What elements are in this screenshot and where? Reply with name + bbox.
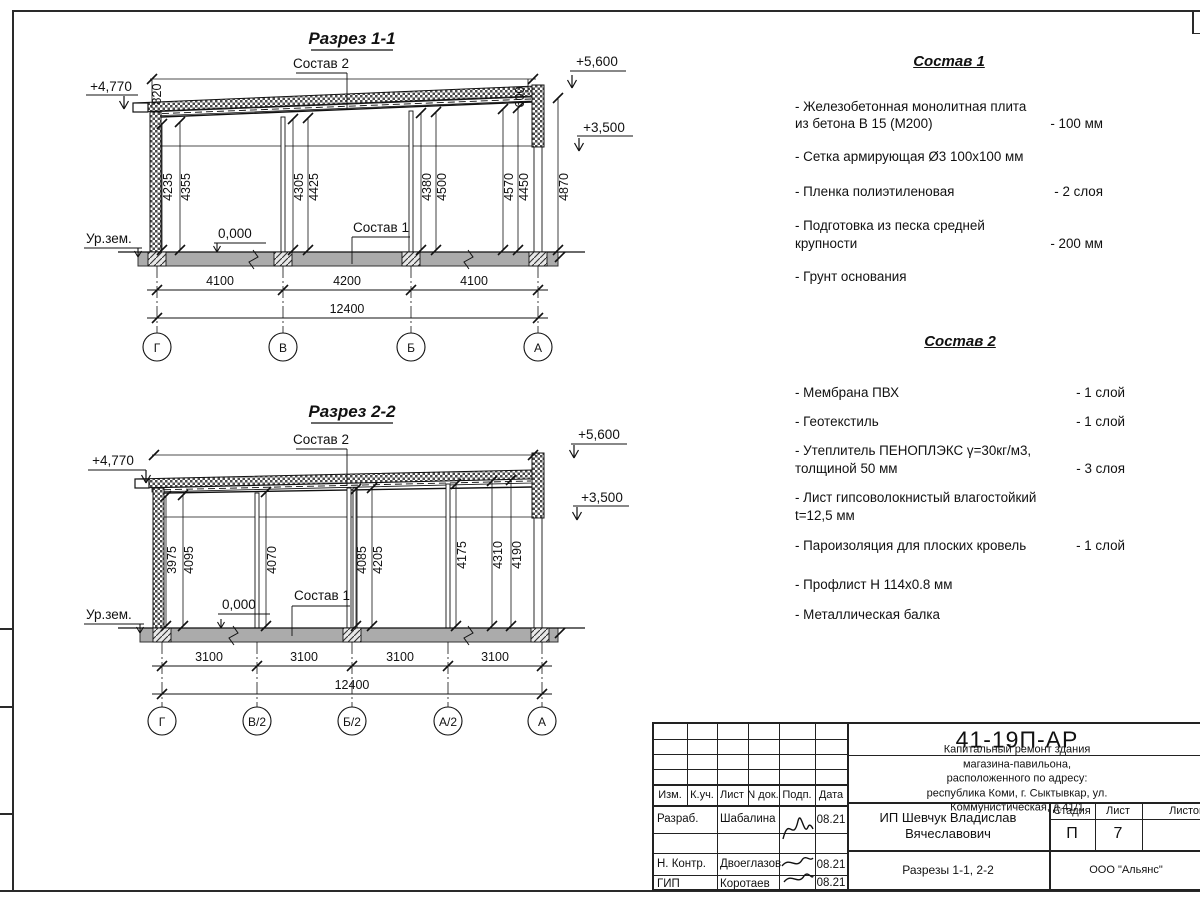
row-name: Коротаев <box>720 878 770 890</box>
axis-bubble: Г <box>159 715 166 729</box>
height-dim: 4070 <box>265 546 279 574</box>
axis-bubble: А/2 <box>439 715 457 729</box>
height-dim: 4205 <box>371 546 385 574</box>
span-dim: 3100 <box>481 650 509 664</box>
height-dim: 3975 <box>165 546 179 574</box>
sostav1-list: Состав 1 - Железобетонная монолитная пли… <box>795 52 1103 285</box>
axis-bubble: Б <box>407 341 415 355</box>
item-text: - Пленка полиэтиленовая <box>795 183 954 200</box>
dim-820: 820 <box>150 84 164 105</box>
span-dim: 4200 <box>333 274 361 288</box>
drawing-sheet: Разрез 1-1 <box>0 0 1200 900</box>
sostav2-title: Состав 2 <box>795 332 1125 352</box>
height-dim: 4500 <box>435 173 449 201</box>
axis-bubble: А <box>538 715 546 729</box>
ground-label-2: Ур.зем. <box>86 607 132 622</box>
sostav1-callout-2: Состав 1 <box>294 588 350 603</box>
col-kuch: К.уч. <box>690 789 714 801</box>
signature-icon <box>780 807 815 849</box>
elevation-mid-1: +3,500 <box>583 120 625 135</box>
height-dim: 4570 <box>502 173 516 201</box>
list-item: - Железобетонная монолитная плита из бет… <box>795 98 1103 133</box>
height-dim: 4235 <box>161 173 175 201</box>
total-dim: 12400 <box>330 302 365 316</box>
height-dim: 4425 <box>307 173 321 201</box>
organization: ООО "Альянс" <box>1089 864 1163 876</box>
height-dim: 4310 <box>491 541 505 569</box>
sostav2-callout-2: Состав 2 <box>293 432 349 447</box>
list-item: - Мембрана ПВХ - 1 слой <box>795 384 1125 401</box>
row-date: 08.21 <box>817 877 846 889</box>
row-name: Шабалина <box>720 813 776 825</box>
item-text: - Железобетонная монолитная плита из бет… <box>795 98 1026 133</box>
item-value: - 2 слоя <box>1046 183 1103 200</box>
sheets-label: Листов <box>1169 805 1200 817</box>
stage-label: Стадия <box>1053 805 1091 817</box>
list-item: - Профлист Н 114х0.8 мм <box>795 576 1125 593</box>
section-2-drawing: Разрез 2-2 +4,770 <box>84 402 629 735</box>
height-dim: 4305 <box>292 173 306 201</box>
item-value: - 3 слоя <box>1068 460 1125 477</box>
span-dim: 3100 <box>195 650 223 664</box>
col-izm: Изм. <box>658 789 682 801</box>
item-text: - Подготовка из песка средней крупности <box>795 217 985 252</box>
stage-value: П <box>1066 825 1078 843</box>
sheet-title: Разрезы 1-1, 2-2 <box>902 863 994 877</box>
item-text: - Профлист Н 114х0.8 мм <box>795 576 952 593</box>
total-dim: 12400 <box>335 678 370 692</box>
height-dim: 4085 <box>355 546 369 574</box>
sostav1-callout-1: Состав 1 <box>353 220 409 235</box>
signature-icon <box>780 852 815 888</box>
row-role: Н. Контр. <box>657 858 706 870</box>
list-item: - Пароизоляция для плоских кровель - 1 с… <box>795 537 1125 554</box>
span-dim: 3100 <box>290 650 318 664</box>
elevation-eave-2: +4,770 <box>92 453 134 468</box>
list-item: - Утеплитель ПЕНОПЛЭКС γ=30кг/м3, толщин… <box>795 442 1125 477</box>
axis-bubble: А <box>534 341 542 355</box>
item-value: - 1 слой <box>1068 384 1125 401</box>
span-dim: 4100 <box>460 274 488 288</box>
list-item: - Геотекстиль - 1 слой <box>795 413 1125 430</box>
section-1-drawing: Разрез 1-1 <box>84 29 633 361</box>
item-text: - Утеплитель ПЕНОПЛЭКС γ=30кг/м3, толщин… <box>795 442 1031 477</box>
height-dim: 4355 <box>179 173 193 201</box>
axis-bubble: Г <box>154 341 161 355</box>
zero-mark-1: 0,000 <box>218 226 252 241</box>
elevation-parapet-1: +5,600 <box>576 54 618 69</box>
title-block: Изм. К.уч. Лист N док. Подп. Дата Разраб… <box>652 722 1200 891</box>
list-item: - Грунт основания <box>795 268 1103 285</box>
sostav2-list: Состав 2 - Мембрана ПВХ - 1 слой - Геоте… <box>795 332 1125 623</box>
item-text: - Пароизоляция для плоских кровель <box>795 537 1026 554</box>
item-text: - Металлическая балка <box>795 606 940 623</box>
client-name: ИП Шевчук Владислав Вячеславович <box>880 810 1017 843</box>
span-dim: 3100 <box>386 650 414 664</box>
height-dim: 4870 <box>557 173 571 201</box>
elevation-mid-2: +3,500 <box>581 490 623 505</box>
height-dim: 4450 <box>517 173 531 201</box>
section-1-title: Разрез 1-1 <box>308 29 395 48</box>
list-item: - Сетка армирующая Ø3 100х100 мм <box>795 148 1103 165</box>
item-text: - Сетка армирующая Ø3 100х100 мм <box>795 148 1023 165</box>
height-dim: 4190 <box>510 541 524 569</box>
item-text: - Грунт основания <box>795 268 906 285</box>
col-data: Дата <box>819 789 843 801</box>
item-value: - 1 слой <box>1068 413 1125 430</box>
list-item: - Подготовка из песка средней крупности … <box>795 217 1103 252</box>
section-2-title: Разрез 2-2 <box>308 402 396 421</box>
row-name: Двоеглазов <box>720 858 781 870</box>
sostav2-callout-1: Состав 2 <box>293 56 349 71</box>
height-dim: 4175 <box>455 541 469 569</box>
item-text: - Лист гипсоволокнистый влагостойкий t=1… <box>795 489 1036 524</box>
item-value: - 100 мм <box>1042 115 1103 132</box>
axis-bubble: Б/2 <box>343 715 361 729</box>
col-podp: Подп. <box>782 789 811 801</box>
row-role: ГИП <box>657 878 680 890</box>
item-text: - Геотекстиль <box>795 413 879 430</box>
dim-600: 600 <box>513 87 527 108</box>
list-item: - Лист гипсоволокнистый влагостойкий t=1… <box>795 489 1125 524</box>
col-list: Лист <box>720 789 744 801</box>
item-text: - Мембрана ПВХ <box>795 384 899 401</box>
list-item: - Металлическая балка <box>795 606 1125 623</box>
row-date: 08.21 <box>817 814 846 826</box>
list-item: - Пленка полиэтиленовая - 2 слоя <box>795 183 1103 200</box>
item-value: - 1 слой <box>1068 537 1125 554</box>
height-dim: 4380 <box>420 173 434 201</box>
ground-label-1: Ур.зем. <box>86 231 132 246</box>
span-dim: 4100 <box>206 274 234 288</box>
zero-mark-2: 0,000 <box>222 597 256 612</box>
row-role: Разраб. <box>657 813 698 825</box>
item-value: - 200 мм <box>1042 235 1103 252</box>
axis-bubble: В/2 <box>248 715 266 729</box>
height-dim: 4095 <box>182 546 196 574</box>
row-date: 08.21 <box>817 859 846 871</box>
sostav1-title: Состав 1 <box>795 52 1103 72</box>
col-ndok: N док. <box>747 789 778 801</box>
sheet-number: 7 <box>1114 825 1123 843</box>
elevation-parapet-2: +5,600 <box>578 427 620 442</box>
elevation-eave-1: +4,770 <box>90 79 132 94</box>
axis-bubble: В <box>279 341 287 355</box>
sheet-label: Лист <box>1106 805 1130 817</box>
